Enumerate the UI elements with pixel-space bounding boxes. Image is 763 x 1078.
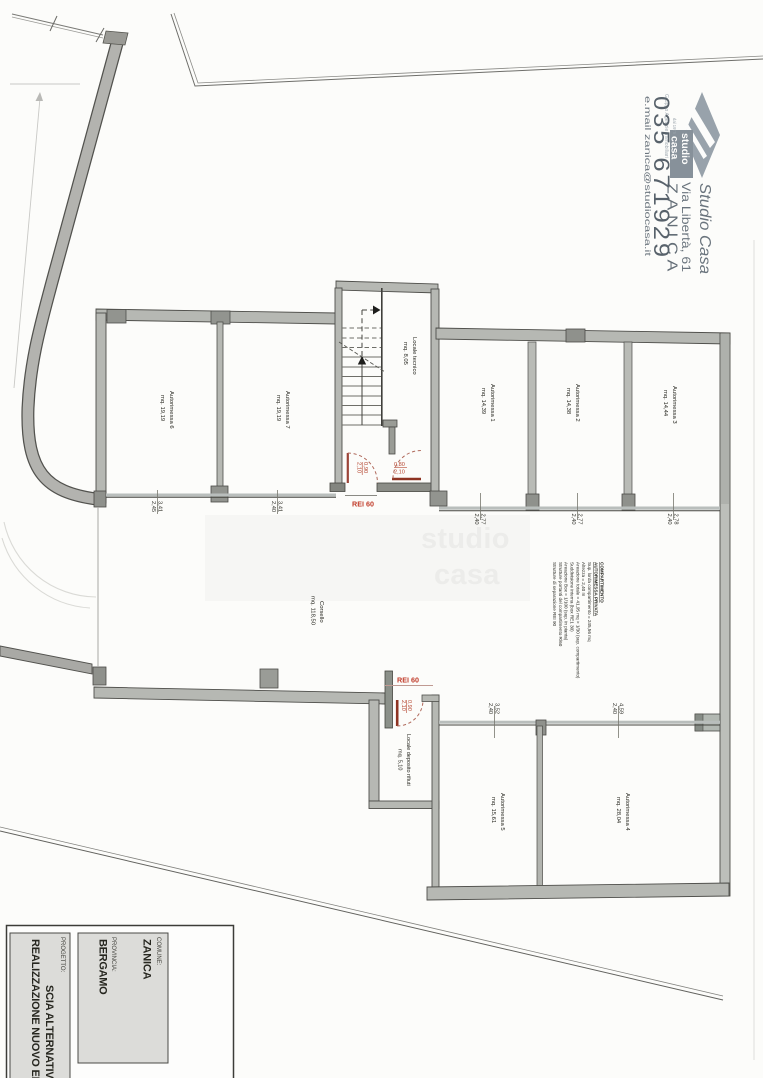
svg-text:mq. 19,19: mq. 19,19 [275,395,281,421]
svg-text:BERGAMO: BERGAMO [97,939,109,995]
svg-text:Autorimessa 3: Autorimessa 3 [671,386,677,424]
svg-text:2,40: 2,40 [270,501,276,512]
svg-text:2,77: 2,77 [479,514,485,525]
svg-text:Autorimessa 5: Autorimessa 5 [499,793,505,831]
svg-text:mq. 5,10: mq. 5,10 [397,749,403,770]
svg-text:PROVINCIA:: PROVINCIA: [110,937,116,972]
svg-text:0,80: 0,80 [394,462,405,468]
svg-text:Suddivisione interna (box RE1: Suddivisione interna (box RE1 30) [570,562,575,632]
svg-text:Locale deposito rifiuti: Locale deposito rifiuti [405,734,411,786]
svg-text:mq. 19,19: mq. 19,19 [159,395,165,421]
svg-text:AUTORIMESSA PRIVATA: AUTORIMESSA PRIVATA [594,562,599,617]
svg-text:0,90: 0,90 [362,462,368,473]
svg-text:2,40: 2,40 [666,514,672,525]
svg-text:Areazione totale = 41,95 mq >: Areazione totale = 41,95 mq > 1/30 (sup.… [575,562,580,679]
svg-text:2,10: 2,10 [356,462,362,473]
svg-text:REALIZZAZIONE NUOVO EDIF: REALIZZAZIONE NUOVO EDIF [29,939,41,1078]
svg-text:3,41: 3,41 [276,501,282,512]
svg-text:3,52: 3,52 [493,703,499,714]
svg-text:2,10: 2,10 [400,700,406,711]
svg-text:Autorimessa 7: Autorimessa 7 [284,391,290,429]
svg-text:COMPARTIMENTO: COMPARTIMENTO [600,562,605,603]
svg-text:mq. 14,39: mq. 14,39 [480,388,486,414]
svg-text:2,40: 2,40 [611,703,617,714]
svg-text:mq. 14,44: mq. 14,44 [662,390,668,417]
svg-text:2,40: 2,40 [487,703,493,714]
svg-text:REI 60: REI 60 [397,676,419,685]
svg-text:2,40: 2,40 [473,514,479,525]
svg-text:Strutture di separazione REI 9: Strutture di separazione REI 90 [552,562,557,627]
svg-text:COMUNE:: COMUNE: [155,937,161,966]
svg-text:Locale tecnico: Locale tecnico [411,337,417,375]
svg-text:Autorimessa 2: Autorimessa 2 [574,384,580,422]
svg-text:Autorimessa 6: Autorimessa 6 [168,391,174,429]
svg-text:2,40: 2,40 [570,514,576,525]
svg-text:ZANICA: ZANICA [141,939,153,980]
svg-text:4,59: 4,59 [617,703,623,714]
svg-text:SCIA ALTERNATIVA: SCIA ALTERNATIVA [43,985,55,1078]
svg-text:casa: casa [434,559,500,591]
svg-text:2,77: 2,77 [576,514,582,525]
svg-text:Altezza = 2,40 m: Altezza = 2,40 m [581,562,586,597]
svg-text:REI 60: REI 60 [352,500,374,509]
svg-text:mq. 118,50: mq. 118,50 [310,596,316,626]
svg-text:Strutture portanti del compart: Strutture portanti del compartimento R/6… [558,562,563,647]
svg-text:studio: studio [421,523,510,555]
svg-text:Studio Casa: Studio Casa [696,183,713,274]
svg-text:2,10: 2,10 [394,470,405,476]
svg-text:Sup. lorda compartimento = 245: Sup. lorda compartimento = 245,56 mq [587,562,592,642]
svg-text:Autorimessa 4: Autorimessa 4 [624,793,630,831]
svg-text:Autorimessa 1: Autorimessa 1 [489,384,495,422]
svg-text:Corsello: Corsello [318,601,324,623]
svg-text:2,45: 2,45 [150,501,156,512]
svg-text:PROGETTO:: PROGETTO: [59,937,65,973]
svg-text:Areazione Box = 1/100 (sup. in: Areazione Box = 1/100 (sup. in pianta) [564,562,569,641]
svg-text:mq. 15,61: mq. 15,61 [490,797,496,823]
svg-text:3,41: 3,41 [156,501,162,512]
svg-text:e.mail zanica@studiocasa.it: e.mail zanica@studiocasa.it [643,96,653,257]
svg-text:2,78: 2,78 [672,514,678,525]
svg-text:0,90: 0,90 [406,700,412,711]
svg-text:mq. 8,05: mq. 8,05 [402,342,408,366]
svg-text:mq. 28,04: mq. 28,04 [615,797,621,824]
svg-text:mq. 14,38: mq. 14,38 [565,388,571,415]
